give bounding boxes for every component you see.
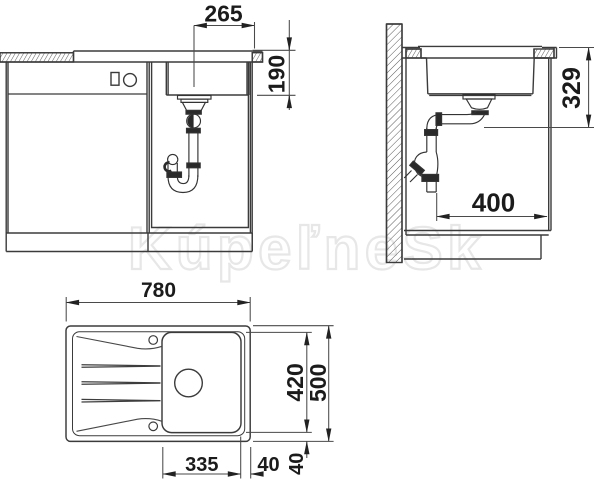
svg-text:329: 329	[558, 67, 586, 109]
svg-text:335: 335	[185, 454, 218, 476]
svg-text:500: 500	[305, 364, 331, 402]
svg-text:190: 190	[264, 55, 290, 93]
svg-text:40: 40	[286, 453, 308, 475]
svg-text:780: 780	[141, 279, 176, 302]
svg-text:400: 400	[472, 188, 515, 218]
svg-text:KúpeľneSk: KúpeľneSk	[128, 215, 485, 282]
svg-text:40: 40	[257, 454, 279, 476]
svg-text:265: 265	[204, 1, 243, 27]
